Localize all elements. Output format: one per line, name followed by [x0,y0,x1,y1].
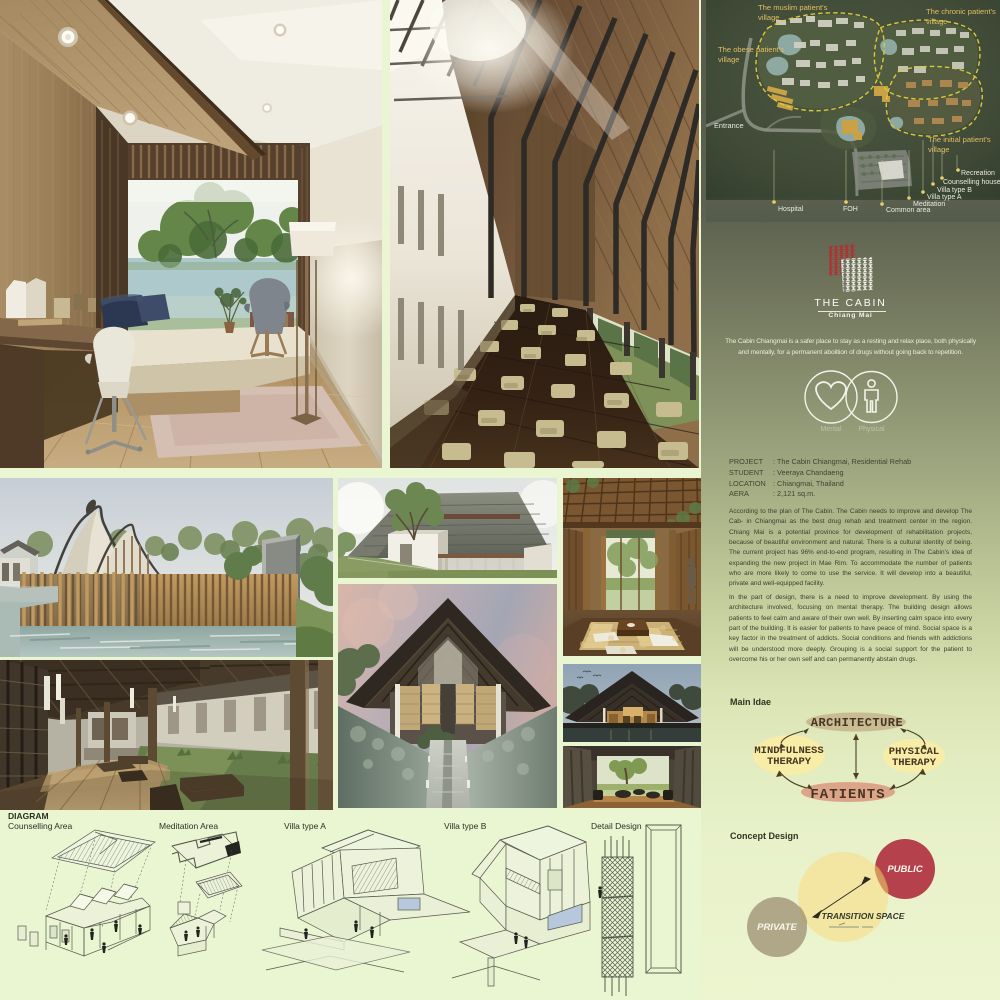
svg-text:Mental: Mental [820,426,841,433]
svg-text:PRIVATE: PRIVATE [757,922,797,933]
svg-text:DIAGRAM: DIAGRAM [8,811,49,821]
svg-text:FATIENTS: FATIENTS [810,787,885,803]
svg-text:THERAPY: THERAPY [892,757,937,769]
svg-text:PUBLIC: PUBLIC [887,864,923,875]
svg-text:THERAPY: THERAPY [767,756,812,768]
svg-text:Meditation Area: Meditation Area [159,821,218,831]
svg-text:ARCHITECTURE: ARCHITECTURE [811,716,903,730]
svg-text:Detail Design: Detail Design [591,821,642,831]
svg-text:Villa type B: Villa type B [444,821,487,831]
svg-text:Villa type A: Villa type A [284,821,326,831]
svg-text:Counselling Area: Counselling Area [8,821,73,831]
svg-text:Physical: Physical [858,426,885,433]
svg-text:TRANSITION SPACE: TRANSITION SPACE [822,911,905,921]
